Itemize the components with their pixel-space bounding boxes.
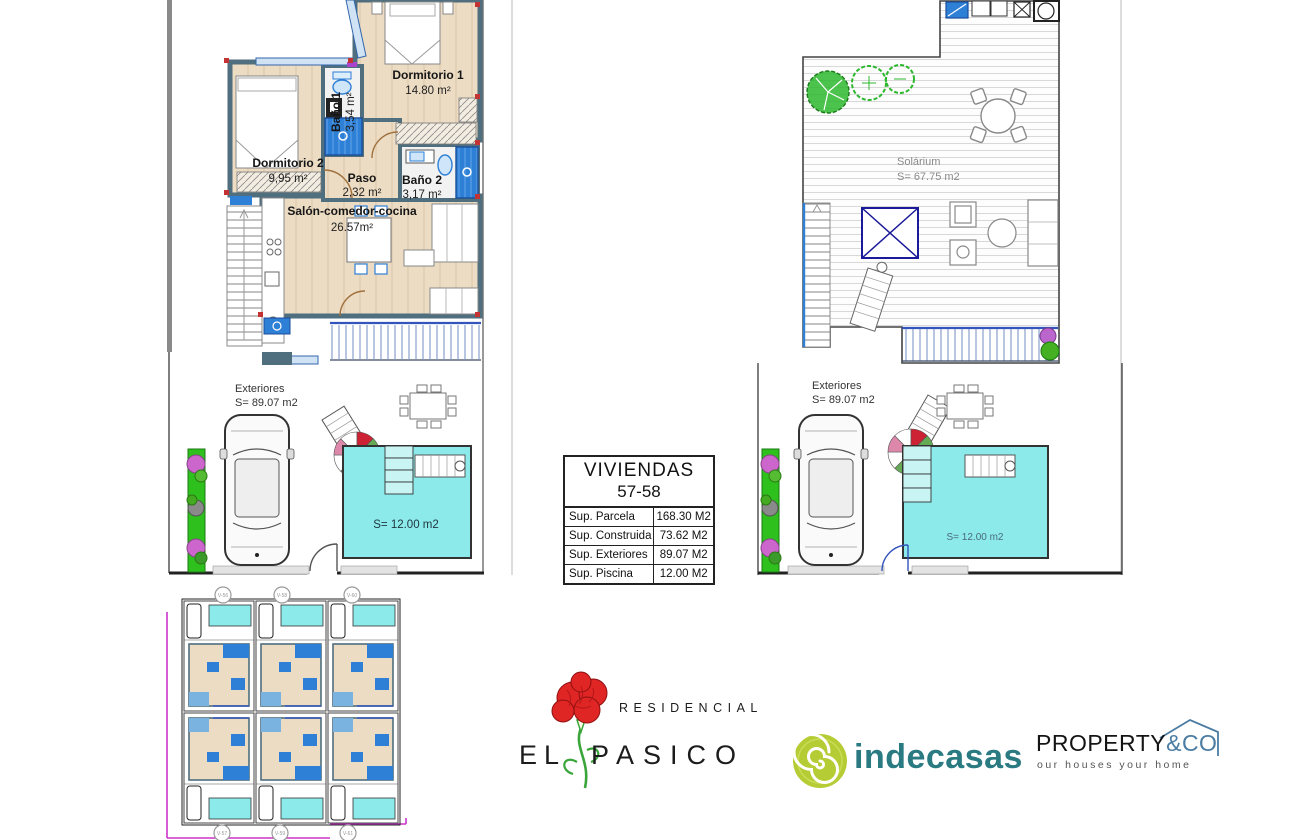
label-salon-name: Salón-comedor-cocina: [287, 204, 417, 218]
plants: [187, 455, 207, 564]
label-dorm1-name: Dormitorio 1: [392, 68, 464, 82]
wardrobe-dorm1: [396, 123, 476, 144]
car: [220, 415, 294, 565]
table-row: Sup. Construida 73.62 M2: [565, 527, 713, 546]
site-plan: V-56 V-58 V-60 V-57 V-59 V-61: [167, 587, 406, 840]
marker-v59: V-59: [275, 831, 286, 837]
logo-indecasas: indecasas: [790, 728, 1005, 796]
row-label: Sup. Piscina: [565, 565, 654, 583]
label-bano2-name: Baño 2: [402, 173, 442, 187]
andco-word: &CO: [1166, 730, 1217, 756]
marker-v61: V-61: [343, 831, 354, 837]
label-bano1-name: Baño 1: [329, 92, 343, 132]
pool-lounger-right: [965, 455, 1015, 477]
label-dorm2-name: Dormitorio 2: [252, 156, 324, 170]
exterior-stairs: [227, 196, 262, 346]
car-right: [794, 415, 868, 565]
row-value: 12.00 M2: [654, 568, 713, 580]
logo-property-co: PROPERTY&CO our houses your home: [1032, 712, 1232, 774]
row-value: 89.07 M2: [654, 549, 713, 561]
property-text: PROPERTY&CO: [1036, 730, 1217, 757]
label-solarium-area: S= 67.75 m2: [897, 171, 960, 183]
pergola: [862, 208, 918, 258]
label-solarium-name: Solárium: [897, 156, 940, 168]
el-text: EL: [519, 740, 566, 771]
label-ext-left-name: Exteriores: [235, 383, 285, 395]
label-paso-name: Paso: [348, 171, 377, 185]
exterior-area-left: [187, 385, 471, 572]
right-floor-plan: Solárium S= 67.75 m2: [758, 0, 1122, 575]
label-ext-right-name: Exteriores: [812, 380, 862, 392]
logo-residencial-el-pasico: RESIDENCIAL EL PASICO: [515, 668, 730, 793]
label-pool-left: S= 12.00 m2: [373, 519, 439, 531]
wardrobe-dorm1-side: [459, 98, 477, 122]
label-ext-right-area: S= 89.07 m2: [812, 394, 875, 406]
garden-table-left: [400, 385, 456, 428]
table-title: VIVIENDAS 57-58: [565, 457, 713, 508]
row-value: 168.30 M2: [654, 511, 713, 523]
row-label: Sup. Construida: [565, 527, 654, 545]
marker-v56: V-56: [218, 593, 229, 599]
plan-sheet: Dormitorio 1 14.80 m² Baño 1 3,54 m² Dor…: [0, 0, 1290, 840]
label-dorm2-area: 9,95 m²: [269, 173, 308, 185]
row-value: 73.62 M2: [654, 530, 713, 542]
table-row: Sup. Exteriores 89.07 M2: [565, 546, 713, 565]
table-title-line2: 57-58: [565, 482, 713, 502]
solarium-railing: [902, 328, 1059, 361]
carnation-flower-icon: [515, 668, 730, 793]
marker-v57: V-57: [217, 831, 228, 837]
property-tagline: our houses your home: [1037, 759, 1191, 771]
table-row: Sup. Piscina 12.00 M2: [565, 565, 713, 583]
spiral-icon: [790, 730, 852, 792]
label-bano1-area: 3,54 m²: [345, 92, 357, 131]
label-pool-right: S= 12.00 m2: [947, 532, 1004, 543]
viviendas-summary-table: VIVIENDAS 57-58 Sup. Parcela 168.30 M2 S…: [563, 455, 715, 585]
left-floor-plan: Dormitorio 1 14.80 m² Baño 1 3,54 m² Dor…: [167, 0, 512, 575]
table-row: Sup. Parcela 168.30 M2: [565, 508, 713, 527]
bed-dormitorio-2: [236, 76, 298, 168]
row-label: Sup. Parcela: [565, 508, 654, 526]
table-title-line1: VIVIENDAS: [565, 460, 713, 482]
plants-right: [761, 455, 781, 564]
pool-left: [343, 446, 471, 558]
gate-door-left: [310, 544, 337, 571]
marker-v58: V-58: [277, 593, 288, 599]
marker-v60: V-60: [347, 593, 358, 599]
solarium-stairs: [803, 203, 830, 347]
label-dorm1-area: 14.80 m²: [405, 85, 451, 97]
residencial-text: RESIDENCIAL: [619, 701, 763, 715]
label-bano2-area: 3,17 m²: [403, 189, 442, 201]
label-salon-area: 26.57m²: [331, 222, 373, 234]
property-word: PROPERTY: [1036, 730, 1166, 756]
pasico-text: PASICO: [591, 740, 745, 771]
label-paso-area: 2,32 m²: [343, 187, 382, 199]
left-boundary-wall: [167, 0, 172, 352]
label-ext-left-area: S= 89.07 m2: [235, 397, 298, 409]
pool-lounger: [415, 455, 465, 477]
indecasas-text: indecasas: [854, 738, 1023, 777]
row-label: Sup. Exteriores: [565, 546, 654, 564]
